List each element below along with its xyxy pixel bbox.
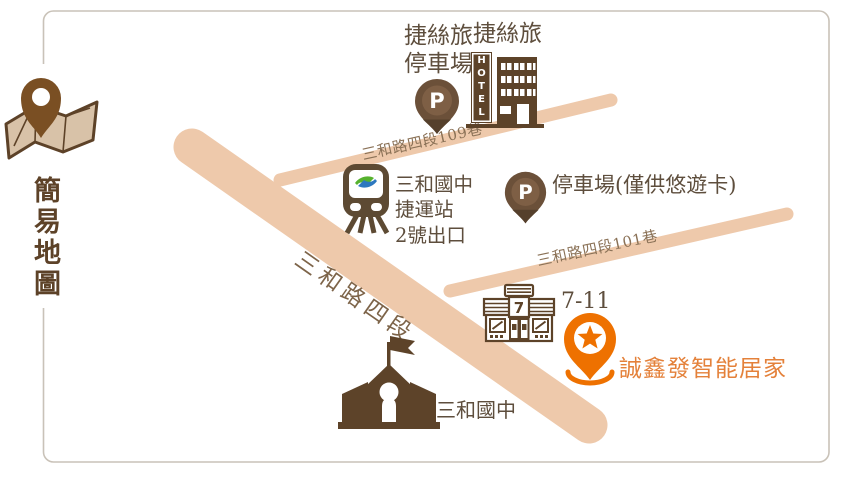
- destination-label: 誠鑫發智能居家: [619, 349, 787, 383]
- school-label: 三和國中: [436, 398, 516, 422]
- map-legend-icon: [0, 66, 102, 166]
- seven-eleven-sign-digit: 7: [514, 299, 524, 317]
- destination-pin-icon: [561, 310, 619, 394]
- easycard-parking-label: 停車場(僅供悠遊卡): [552, 173, 736, 199]
- justsleep-parking-pin-icon: P: [413, 78, 461, 136]
- school-icon: [336, 330, 442, 434]
- metro-label-line3: 2號出口: [395, 223, 473, 248]
- metro-label-line2: 捷運站: [395, 197, 473, 222]
- hotel-building-icon: [466, 54, 544, 130]
- metro-label-line1: 三和國中: [395, 172, 473, 197]
- parking-p-letter: P: [518, 181, 532, 204]
- metro-station-icon: [337, 163, 395, 235]
- seven-eleven-icon: 7: [482, 284, 556, 346]
- easycard-parking-pin-icon: P: [503, 169, 548, 227]
- metro-station-label: 三和國中 捷運站 2號出口: [395, 172, 473, 248]
- justsleep-hotel-label: 捷絲旅: [473, 20, 542, 48]
- justsleep-parking-label-line1: 捷絲旅: [404, 22, 473, 50]
- map-canvas: 三和路四段109巷 三和路四段101巷 三和路四段 簡易地圖 捷絲旅 停車場 P…: [0, 0, 841, 483]
- justsleep-parking-label: 捷絲旅 停車場: [404, 22, 473, 78]
- school-flag-icon: [390, 336, 415, 355]
- parking-p-letter: P: [429, 89, 444, 113]
- map-title: 簡易地圖: [24, 170, 64, 306]
- justsleep-parking-label-line2: 停車場: [404, 50, 473, 78]
